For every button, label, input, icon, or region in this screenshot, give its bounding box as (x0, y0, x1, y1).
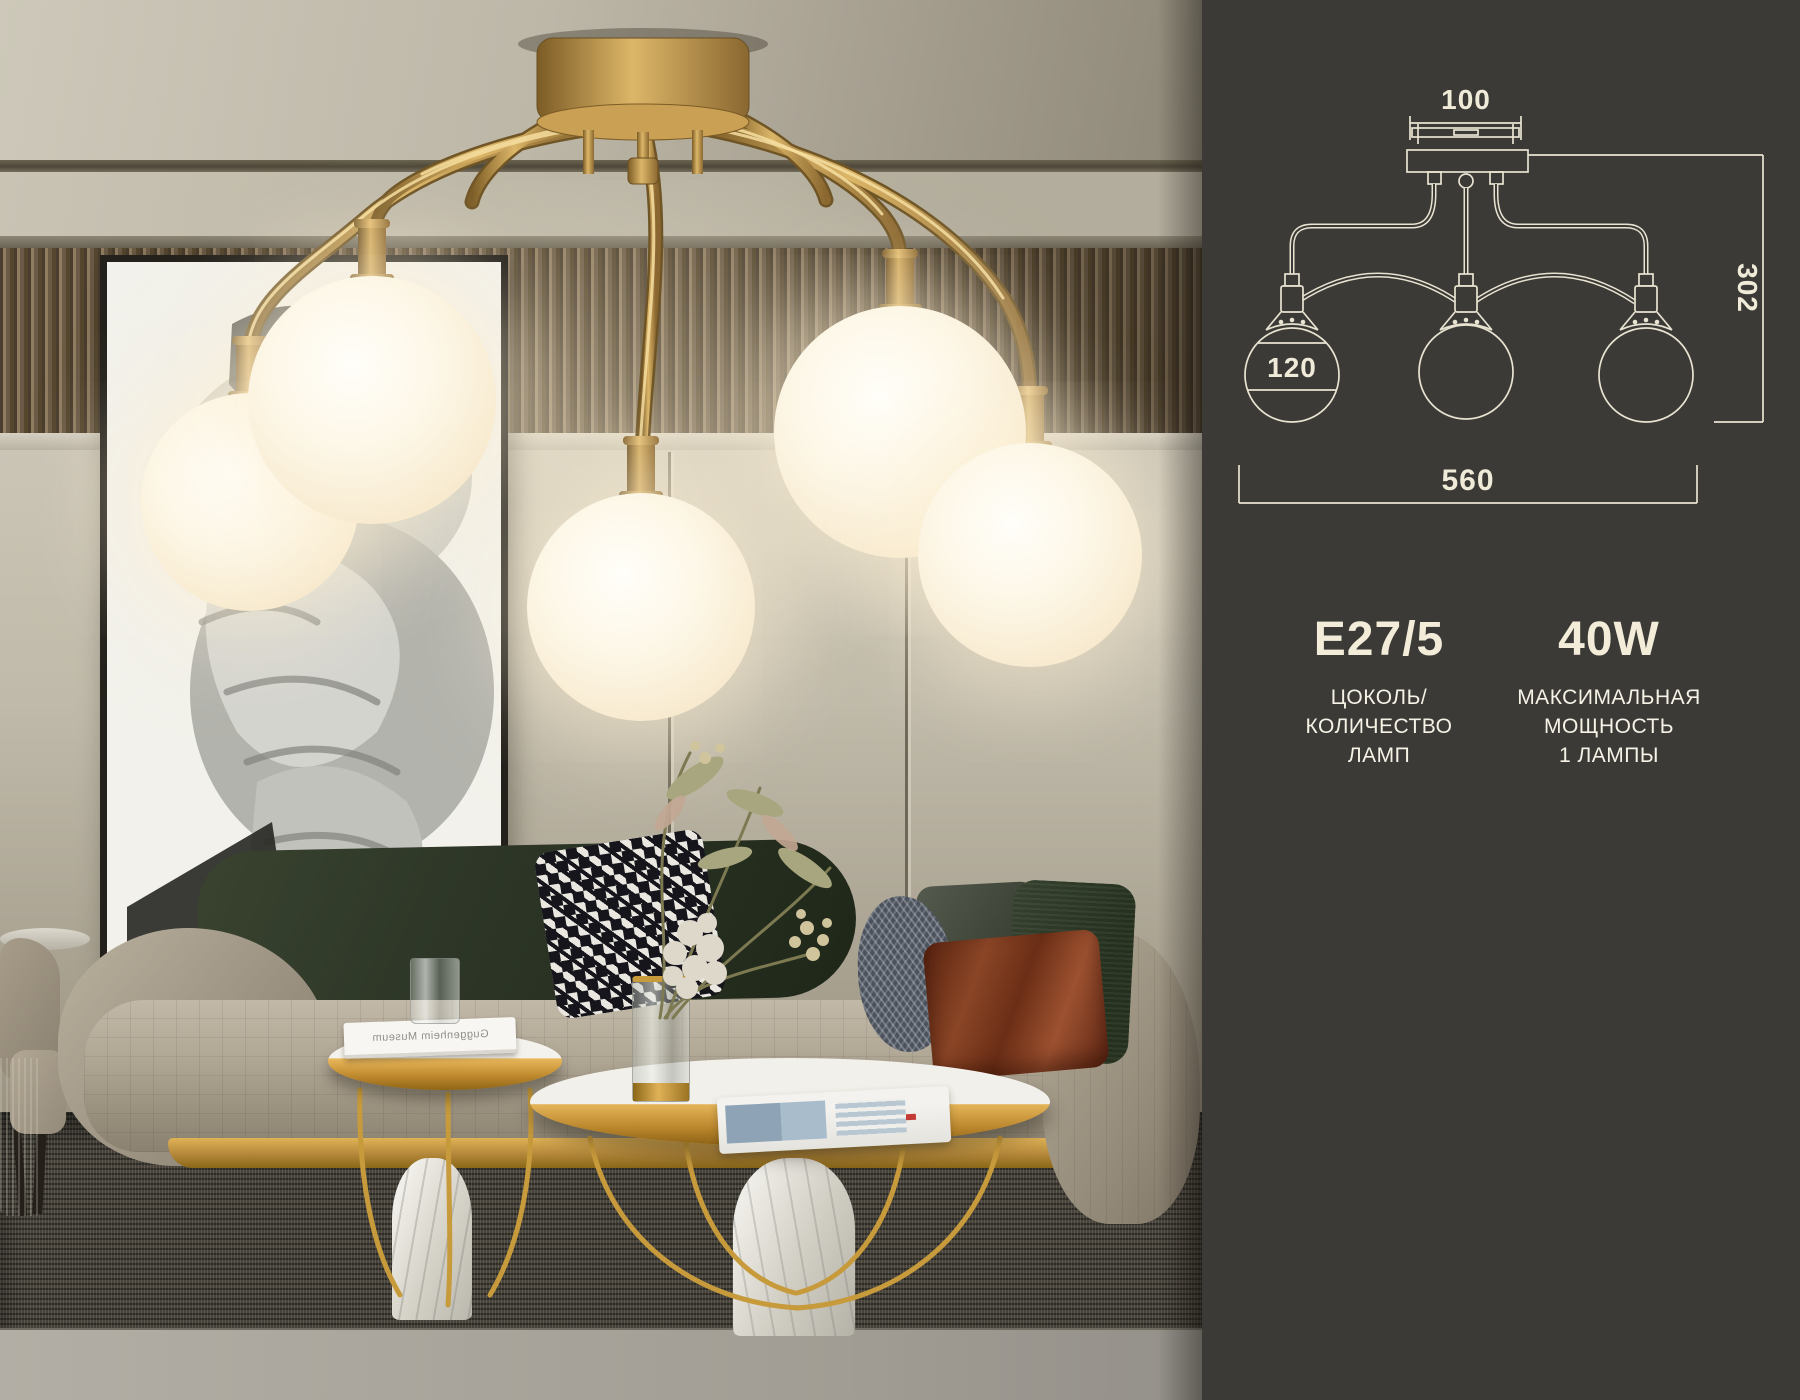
glass-globe (918, 443, 1142, 667)
dim-label-globe-diameter: 120 (1242, 352, 1342, 384)
left-table-legs (330, 1060, 560, 1310)
lamp-socket (358, 226, 386, 278)
right-table-legs (545, 1128, 1045, 1338)
photo-edge-shadow (1158, 0, 1202, 1400)
dim-label-canopy-width: 100 (1416, 84, 1516, 116)
interior-photo: Guggenheim Museum (0, 0, 1202, 1400)
dried-flowers (555, 718, 865, 1028)
glass-cup (410, 958, 460, 1024)
floor (0, 1328, 1202, 1400)
rust-velvet-pillow (922, 929, 1109, 1082)
lamp-socket (627, 443, 655, 495)
lamp-socket (886, 256, 914, 308)
glass-globe (527, 493, 755, 721)
throw-blanket (0, 1058, 42, 1216)
spec-panel: 100 120 302 560 E27/5 ЦОКОЛЬ/ КОЛИЧЕСТВО… (1202, 0, 1800, 1400)
book-title: Guggenheim Museum (371, 1028, 488, 1044)
dim-label-total-width: 560 (1418, 464, 1518, 498)
product-card: Guggenheim Museum (0, 0, 1800, 1400)
spec-max-power-caption: МАКСИМАЛЬНАЯ МОЩНОСТЬ 1 ЛАМПЫ (1459, 683, 1759, 770)
dim-label-height: 302 (1731, 238, 1763, 338)
spec-max-power: 40W МАКСИМАЛЬНАЯ МОЩНОСТЬ 1 ЛАМПЫ (1459, 612, 1759, 770)
spec-max-power-value: 40W (1459, 612, 1759, 667)
glass-globe (248, 276, 496, 524)
